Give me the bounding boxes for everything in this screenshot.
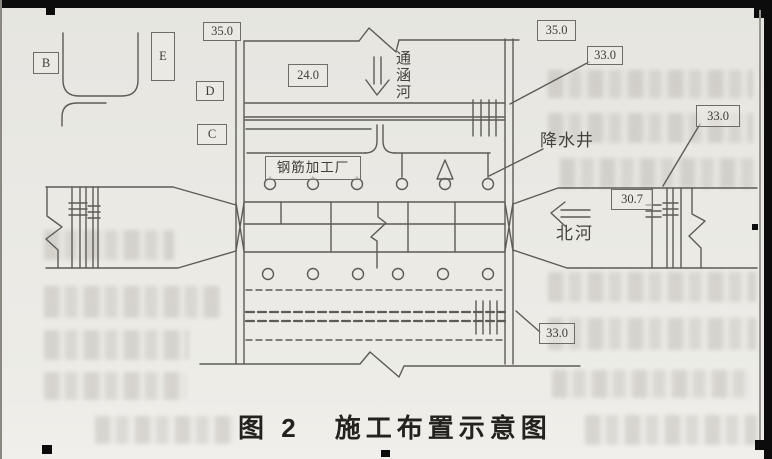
bei-river-bank-left [46, 187, 236, 268]
break-symbol [689, 188, 705, 268]
label-text: 30.7 [621, 193, 643, 206]
elevation-label-canal: 33.0 [587, 46, 623, 65]
break-symbol [359, 28, 399, 52]
dewatering-wells-label: 降水井 [540, 132, 594, 150]
elevation-label-road-left: 35.0 [203, 22, 241, 41]
building-label-d: D [196, 81, 224, 101]
scan-right-border [764, 0, 772, 459]
dewatering-well-icons [263, 179, 494, 280]
middle-road [245, 100, 505, 136]
flow-arrow-down-icon [366, 57, 389, 95]
south-service-lines [246, 290, 505, 340]
sluice-symbol-right [652, 188, 681, 268]
tonghan-river-label: 通涵河 [396, 50, 413, 101]
culvert-symbol [476, 301, 497, 334]
label-text: 24.0 [297, 69, 319, 82]
label-text: 33.0 [594, 49, 616, 62]
scan-top-border [0, 0, 772, 8]
registration-mark [333, 0, 344, 8]
figure-caption: 图 2 施工布置示意图 [238, 408, 552, 445]
cofferdam-crossing-left [236, 203, 244, 251]
cofferdam-crossing-right [505, 203, 513, 251]
site-plan-drawing [0, 0, 772, 459]
building-label-b: B [33, 52, 59, 74]
elevation-label-yard: 24.0 [288, 64, 328, 87]
access-road-loop [62, 33, 138, 126]
elevation-label-right-bank: 33.0 [696, 105, 740, 127]
road-right [505, 39, 513, 364]
label-text: 33.0 [707, 110, 729, 123]
pump-triangle-icon [437, 160, 453, 179]
registration-mark [755, 440, 766, 450]
registration-mark [381, 450, 390, 457]
figure-title: 施工布置示意图 [335, 408, 552, 445]
label-text: 35.0 [211, 25, 233, 38]
bei-river-label: 北河 [556, 225, 594, 243]
rebar-yard-label: 钢筋加工厂 [265, 156, 361, 180]
page-edge-line [759, 10, 761, 450]
elevation-label-south: 33.0 [539, 323, 575, 344]
scanned-page: B E D C 35.0 35.0 33.0 33.0 33.0 24.0 30… [0, 0, 772, 459]
label-text: E [159, 50, 167, 63]
registration-mark [46, 5, 55, 15]
foundation-pit-grid [245, 202, 505, 268]
building-label-e: E [151, 32, 175, 81]
leader-lines [489, 62, 700, 332]
label-text: C [208, 128, 216, 141]
label-text: B [42, 57, 50, 70]
elevation-label-road-right: 35.0 [537, 20, 576, 41]
culvert-symbol [473, 100, 496, 136]
label-text: 33.0 [546, 327, 568, 340]
building-label-c: C [197, 124, 227, 145]
label-text: D [205, 85, 214, 98]
registration-mark [752, 224, 758, 230]
sluice-symbol-left [72, 187, 98, 268]
elevation-label-river: 30.7 [611, 189, 653, 210]
label-text: 钢筋加工厂 [277, 161, 350, 175]
road-left [236, 41, 244, 364]
flow-arrow-left-icon [551, 202, 590, 226]
figure-number: 图 2 [238, 408, 301, 445]
label-text: 35.0 [546, 24, 568, 37]
road-top [244, 28, 519, 52]
break-symbol [46, 187, 62, 268]
registration-mark [42, 445, 52, 454]
south-boundary [200, 352, 580, 377]
break-symbol [371, 202, 386, 268]
scan-left-border [0, 0, 2, 459]
